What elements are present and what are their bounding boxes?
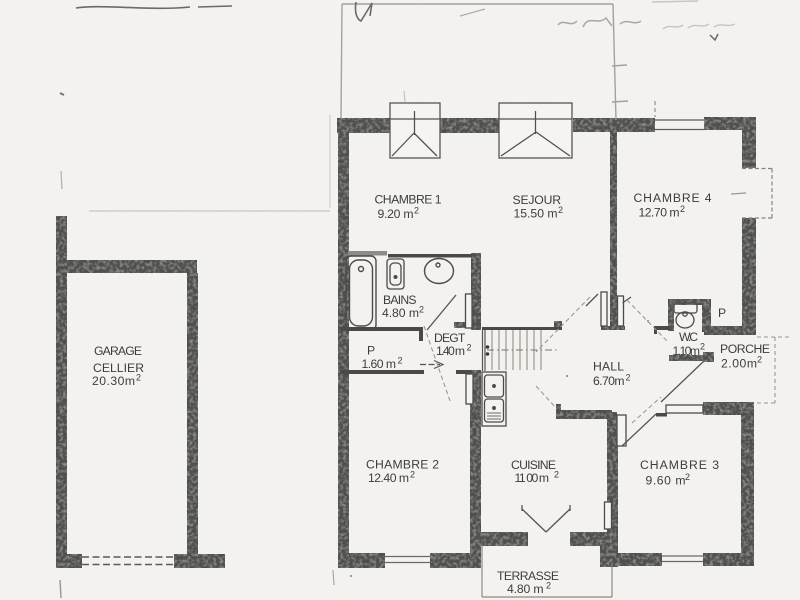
svg-text:CUISINE: CUISINE [511, 458, 556, 472]
svg-text:CHAMBRE 4: CHAMBRE 4 [634, 191, 712, 205]
svg-text:1.40 m: 1.40 m [436, 344, 465, 358]
svg-text:15.50 m: 15.50 m [514, 207, 558, 221]
svg-text:2.00m: 2.00m [721, 357, 757, 371]
svg-text:SEJOUR: SEJOUR [513, 193, 562, 207]
svg-text:12.40 m: 12.40 m [368, 471, 409, 485]
svg-text:1.60 m: 1.60 m [362, 357, 397, 371]
svg-text:2: 2 [419, 305, 424, 315]
svg-text:GARAGE: GARAGE [94, 344, 142, 358]
svg-text:9.60 m: 9.60 m [646, 474, 686, 488]
svg-text:CHAMBRE 1: CHAMBRE 1 [375, 193, 442, 207]
svg-text:2: 2 [700, 342, 705, 352]
svg-text:2: 2 [414, 206, 419, 216]
svg-text:P: P [718, 306, 726, 320]
svg-text:BAINS: BAINS [383, 293, 417, 307]
svg-text:CHAMBRE 2: CHAMBRE 2 [366, 458, 439, 472]
svg-text:4.80 m: 4.80 m [507, 582, 544, 596]
svg-text:2: 2 [467, 343, 472, 353]
svg-text:2: 2 [558, 205, 563, 215]
svg-text:2: 2 [410, 470, 415, 480]
svg-text:12.70 m: 12.70 m [639, 206, 680, 220]
svg-text:PORCHE: PORCHE [720, 342, 770, 356]
svg-text:11 00 m: 11 00 m [515, 471, 550, 485]
svg-text:2: 2 [757, 355, 762, 365]
svg-text:W.C: W.C [679, 330, 698, 344]
svg-text:2: 2 [685, 472, 690, 482]
svg-text:2: 2 [554, 470, 559, 480]
svg-text:20.30m: 20.30m [92, 374, 135, 388]
svg-text:DEGT: DEGT [434, 331, 466, 345]
svg-text:HALL: HALL [593, 360, 624, 374]
svg-text:1.10m: 1.10m [673, 344, 701, 358]
svg-text:CHAMBRE 3: CHAMBRE 3 [640, 458, 719, 472]
svg-text:P: P [367, 344, 375, 358]
svg-text:4.80 m: 4.80 m [382, 306, 419, 320]
svg-text:2: 2 [398, 356, 403, 366]
svg-text:2: 2 [626, 373, 631, 383]
svg-text:2: 2 [546, 581, 551, 591]
svg-text:2: 2 [680, 204, 685, 214]
svg-text:2: 2 [136, 373, 141, 383]
svg-text:6.70m: 6.70m [593, 374, 625, 388]
svg-text:9.20 m: 9.20 m [378, 207, 414, 221]
